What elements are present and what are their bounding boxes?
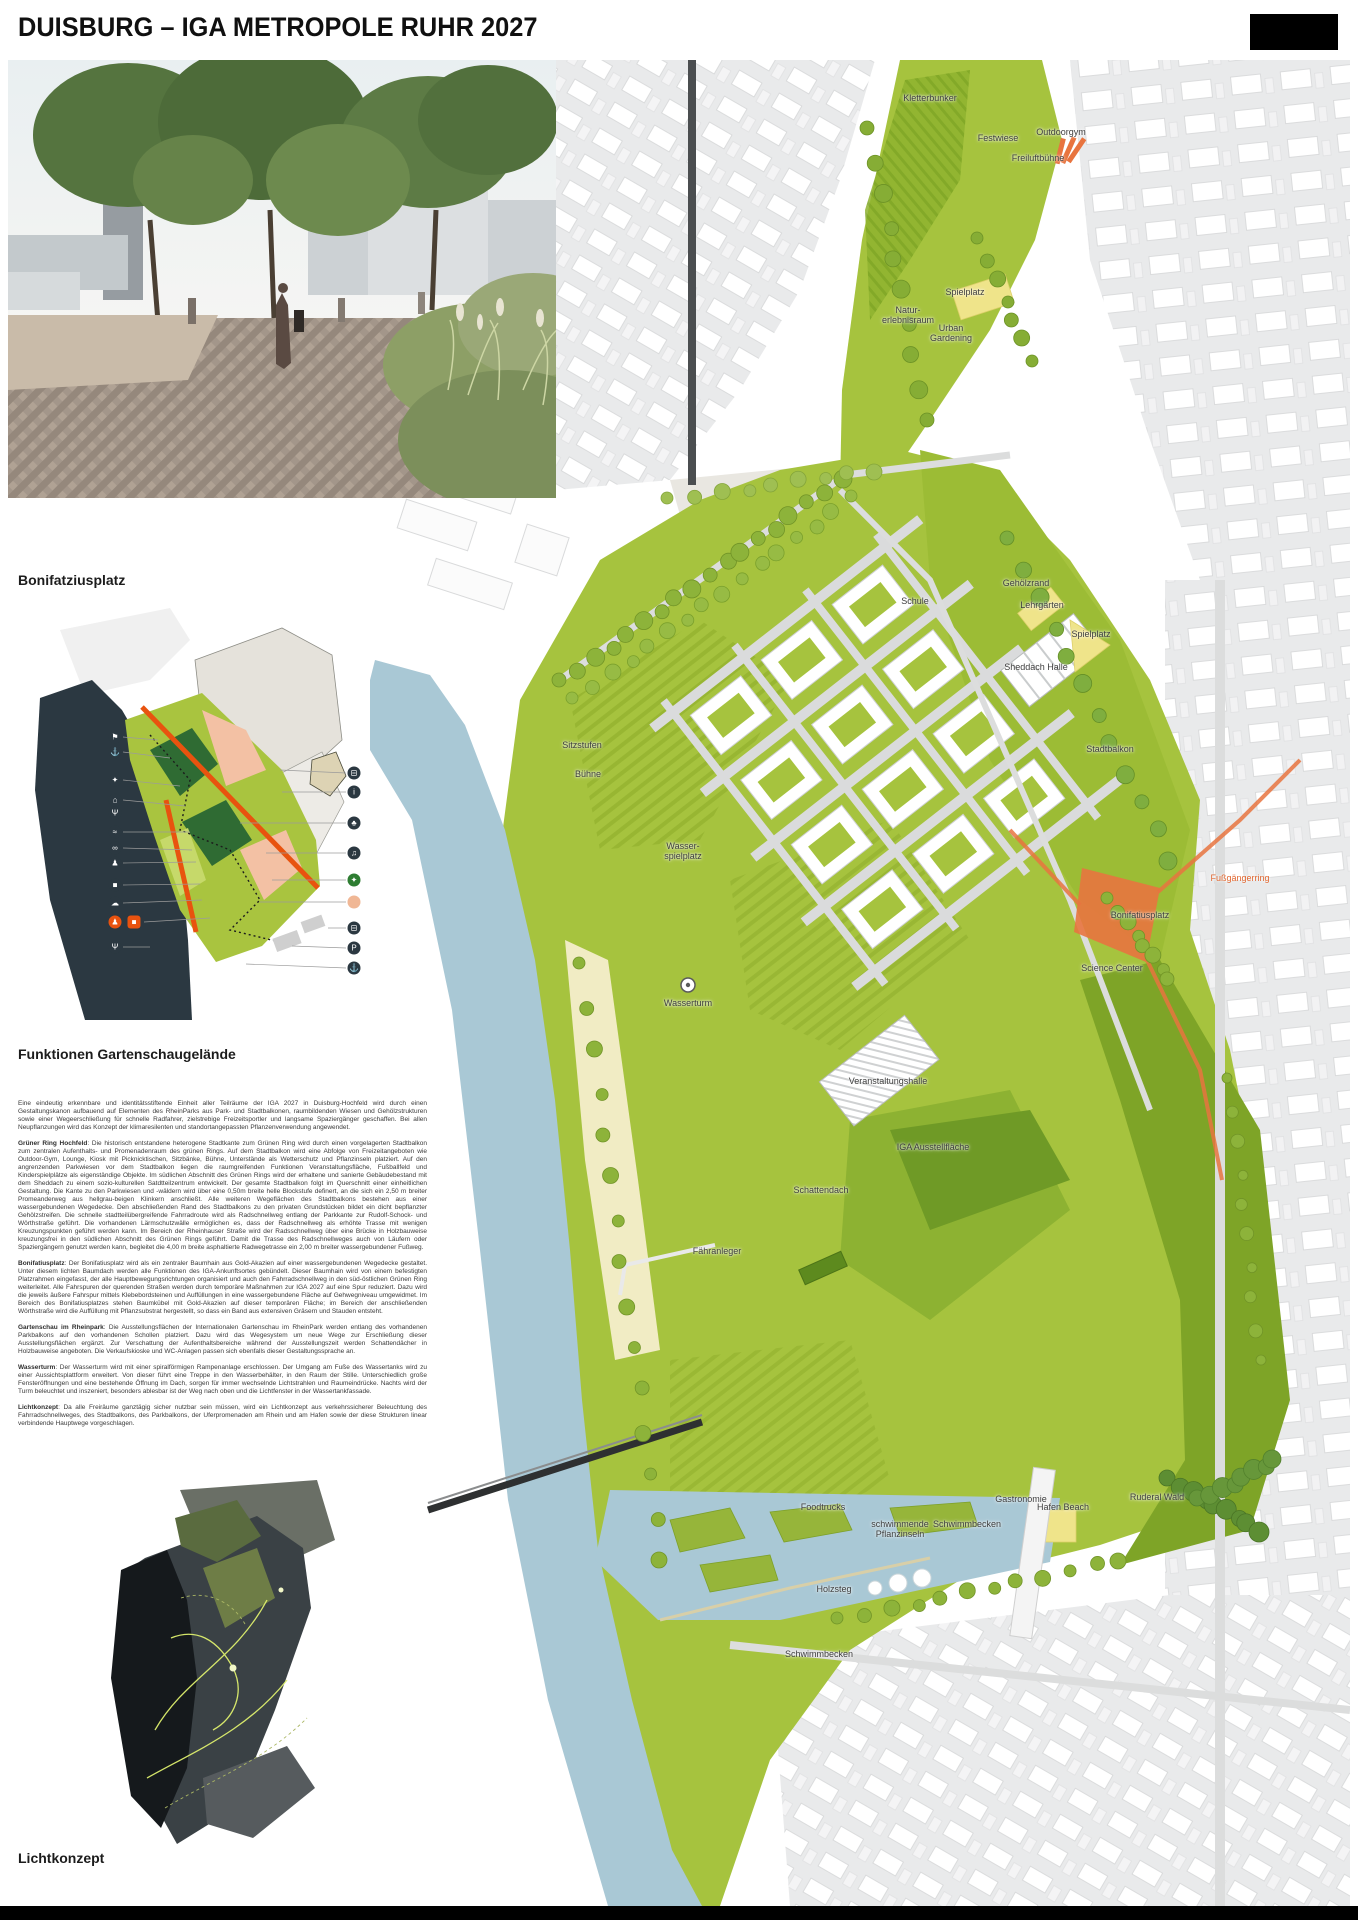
map-label: Natur- erlebnisraum (882, 305, 934, 325)
caption-bonifatziusplatz: Bonifatziusplatz (18, 572, 125, 588)
gym-icon: ⚑ (109, 731, 122, 744)
water-feature-icon: ≈ (109, 826, 122, 839)
map-label: Spielplatz (1071, 629, 1110, 639)
map-label: Science Center (1081, 963, 1143, 973)
map-label: Freiluftbühne (1012, 153, 1065, 163)
bottom-border-bar (0, 1906, 1358, 1920)
map-label: Bühne (575, 769, 601, 779)
article-paragraph: Grüner Ring Hochfeld: Die historisch ent… (18, 1140, 427, 1252)
entrance-green-icon: ✦ (348, 874, 361, 887)
map-label: IGA Ausstellfläche (897, 1142, 970, 1152)
map-label: Sheddach Halle (1004, 662, 1068, 672)
bike-icon: ∞ (109, 842, 122, 855)
shuttle-orange-icon: ■ (128, 916, 141, 929)
map-label: Schule (901, 596, 929, 606)
caption-lichtkonzept: Lichtkonzept (18, 1850, 104, 1866)
tree-icon: ♣ (348, 817, 361, 830)
stage-icon: ♫ (348, 847, 361, 860)
map-label: schwimmende Pflanzinseln (871, 1519, 929, 1539)
entry-number-box (1250, 14, 1338, 50)
map-label: Sitzstufen (562, 740, 602, 750)
map-label: Stadtbalkon (1086, 744, 1134, 754)
map-label: Festwiese (978, 133, 1019, 143)
picnic-icon: Ψ (109, 941, 122, 954)
article-paragraph: Eine eindeutig erkennbare und identitäts… (18, 1100, 427, 1132)
map-label: Outdoorgym (1036, 127, 1086, 137)
concept-text: Eine eindeutig erkennbare und identitäts… (18, 1100, 427, 1436)
caption-functions: Funktionen Gartenschaugelände (18, 1046, 236, 1062)
article-paragraph: Gartenschau im Rheinpark: Die Ausstellun… (18, 1324, 427, 1356)
page-title: DUISBURG – IGA METROPOLE RUHR 2027 (18, 12, 537, 43)
map-label: Spielplatz (945, 287, 984, 297)
gastronomy-icon: Ψ (109, 807, 122, 820)
car-icon: ■ (109, 879, 122, 892)
map-label: Kletterbunker (903, 93, 957, 103)
pedestrian-orange-icon: ♟ (109, 916, 122, 929)
map-label: Ruderal Wald (1130, 1492, 1184, 1502)
lounge-icon: ☁ (109, 897, 122, 910)
map-label: Veranstaltungshalle (849, 1076, 928, 1086)
map-label: Bonifatiusplatz (1111, 910, 1170, 920)
light-concept-diagram (85, 1478, 345, 1850)
map-label: Hafen Beach (1037, 1502, 1089, 1512)
article-paragraph: Wasserturm: Der Wasserturm wird mit eine… (18, 1364, 427, 1396)
parking-icon: P (348, 942, 361, 955)
map-label: Holzsteg (816, 1584, 851, 1594)
article-paragraph: Bonifatiusplatz: Der Bonifatiusplatz wir… (18, 1260, 427, 1316)
photo-bonifatziusplatz-rendering (8, 60, 556, 498)
map-label: Schattendach (793, 1185, 848, 1195)
bus-icon: ⊟ (348, 922, 361, 935)
map-label: Gehölzrand (1003, 578, 1050, 588)
map-label: Schwimmbecken (785, 1649, 853, 1659)
functions-diagram: ⚑⚓✦⌂Ψ≈∞♟■☁♟■Ψ⊟i♣♫✦⊟P⚓ (30, 600, 362, 1020)
temporary-area-icon (348, 896, 361, 909)
map-label: Foodtrucks (801, 1502, 846, 1512)
legend-icons-layer: ⚑⚓✦⌂Ψ≈∞♟■☁♟■Ψ⊟i♣♫✦⊟P⚓ (30, 600, 362, 1020)
map-label: Urban Gardening (930, 323, 972, 343)
map-label: Wasser- spielplatz (664, 841, 702, 861)
map-label: Schwimmbecken (933, 1519, 1001, 1529)
map-label: Fähranleger (693, 1246, 742, 1256)
kiosk-icon: ⌂ (109, 794, 122, 807)
pedestrian-icon: ♟ (109, 857, 122, 870)
map-label: Lehrgärten (1020, 600, 1064, 610)
competition-board: DUISBURG – IGA METROPOLE RUHR 2027 (0, 0, 1358, 1920)
slipway-icon: ⚓ (109, 746, 122, 759)
map-label: Fußgängerring (1210, 873, 1269, 883)
ferry-icon: ⚓ (348, 962, 361, 975)
article-paragraph: Lichtkonzept: Da alle Freiräume ganztägi… (18, 1404, 427, 1428)
bus-stop-icon: ⊟ (348, 767, 361, 780)
map-label: Wasserturm (664, 998, 712, 1008)
playground-icon: ✦ (109, 774, 122, 787)
info-icon: i (348, 786, 361, 799)
